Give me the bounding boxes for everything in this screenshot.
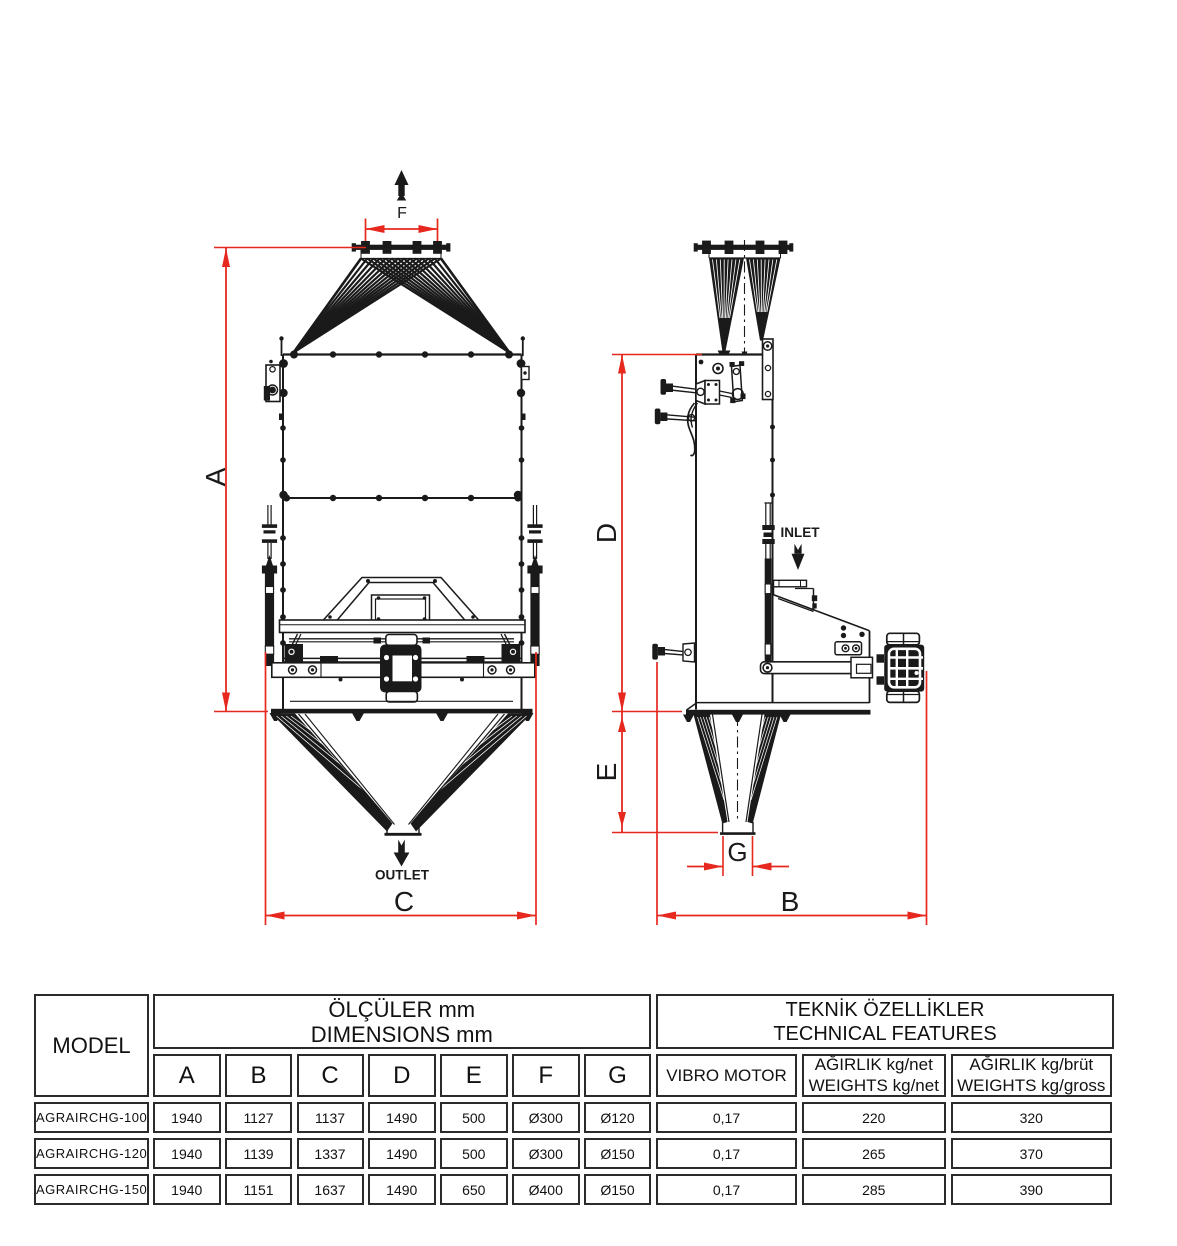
svg-text:G: G xyxy=(727,837,747,867)
svg-text:C: C xyxy=(394,886,414,917)
svg-text:OUTLET: OUTLET xyxy=(375,868,430,883)
svg-text:D: D xyxy=(591,523,622,543)
svg-text:INLET: INLET xyxy=(781,525,821,540)
svg-text:F: F xyxy=(397,205,407,222)
svg-text:E: E xyxy=(591,763,622,782)
svg-text:B: B xyxy=(781,886,800,917)
svg-text:A: A xyxy=(200,467,231,486)
